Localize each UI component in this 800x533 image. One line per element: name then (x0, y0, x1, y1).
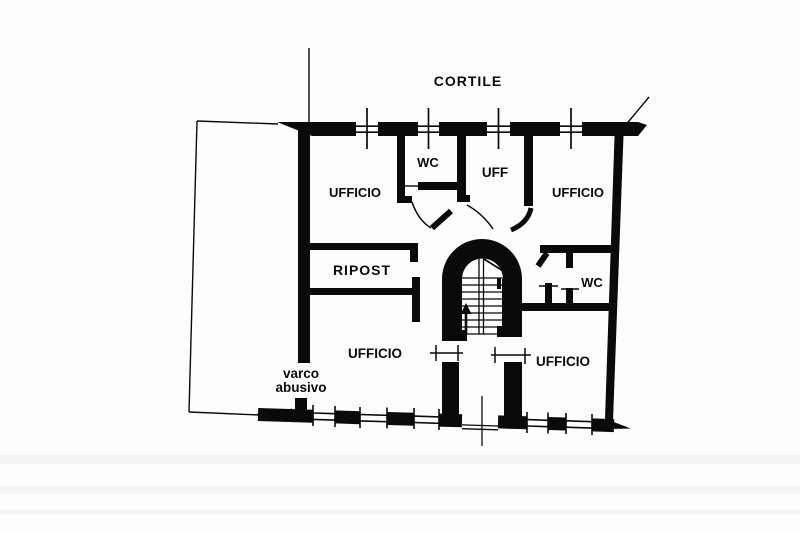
door-jamb (410, 250, 418, 262)
stair-mark (497, 278, 501, 289)
wall-ufficio-wc-right (540, 245, 616, 253)
wall-foot (397, 196, 412, 203)
window (566, 427, 592, 428)
entrance-threshold (462, 429, 498, 430)
wall-segment (298, 122, 310, 363)
stair-wall-foot (442, 330, 467, 341)
wall-stub (412, 295, 420, 322)
vestibule-curved-wall (511, 208, 531, 230)
door-jamb-diagonal (538, 253, 547, 266)
wall-wc-right-bottom (522, 303, 612, 311)
wall-ripost-bottom (298, 288, 420, 295)
wall-foot (457, 195, 470, 202)
wall-taper (638, 122, 647, 136)
door-symbols (405, 186, 579, 289)
label-ufficio-top-left: UFFICIO (329, 185, 381, 200)
wall-segment (378, 122, 418, 136)
window (414, 416, 439, 417)
vestibule-diagonal-wall (432, 211, 451, 228)
wall-uff-ufficio (524, 136, 533, 206)
door-swing-arc (412, 202, 431, 228)
stair-arch-wall (442, 239, 522, 279)
exterior-wall-top (277, 122, 647, 136)
boundary-line (197, 121, 278, 124)
boundary-line (189, 412, 260, 415)
floor-plan-sheet: CORTILE UFFICIO WC UFF UFFICIO RIPOST WC… (0, 0, 800, 533)
corner-tail (607, 420, 631, 430)
label-ripost: RIPOST (333, 262, 391, 278)
door-jamb (412, 277, 420, 288)
floor-plan-drawing: CORTILE UFFICIO WC UFF UFFICIO RIPOST WC… (0, 0, 800, 533)
window (360, 415, 387, 416)
hall-wall-left (442, 362, 459, 415)
wall-ripost-top (310, 243, 418, 250)
scan-band (0, 455, 800, 464)
room-labels: CORTILE UFFICIO WC UFF UFFICIO RIPOST WC… (275, 73, 604, 395)
exterior-wall-right (605, 122, 624, 421)
wall-wc-uff (457, 136, 466, 200)
scan-band (0, 509, 800, 515)
label-varco-abusivo-line2: abusivo (275, 380, 326, 395)
hall-door-symbols (430, 345, 531, 364)
wall-wc-bottom (418, 182, 457, 190)
window (527, 420, 548, 421)
window (527, 426, 548, 427)
wall-segment (439, 122, 487, 136)
label-ufficio-bottom-right: UFFICIO (536, 354, 590, 369)
window (313, 419, 335, 420)
boundary-line (189, 121, 197, 412)
label-varco-abusivo-line1: varco (283, 366, 319, 381)
door-swing-arc (467, 205, 493, 229)
scan-artifact-bands (0, 455, 800, 515)
scan-band (0, 486, 800, 494)
window (313, 413, 335, 414)
window (566, 421, 592, 422)
wall-stub (566, 288, 573, 304)
label-ufficio-top-right: UFFICIO (552, 185, 604, 200)
label-cortile: CORTILE (434, 73, 502, 89)
entrance-threshold (462, 425, 498, 426)
label-uff: UFF (482, 165, 508, 180)
label-ufficio-bottom-left: UFFICIO (348, 346, 402, 361)
wall-segment (510, 122, 560, 136)
label-wc-top: WC (417, 155, 439, 170)
wall-segment (582, 122, 638, 136)
window (360, 421, 387, 422)
hall-wall-right (504, 362, 522, 419)
wall-stub (566, 253, 573, 268)
wall-segment (312, 122, 356, 136)
stair-direction-arrow-head (461, 303, 472, 314)
wall-ufficio-wc (397, 136, 405, 202)
stairwell (430, 239, 531, 419)
window (414, 423, 439, 424)
label-wc-right: WC (581, 275, 603, 290)
